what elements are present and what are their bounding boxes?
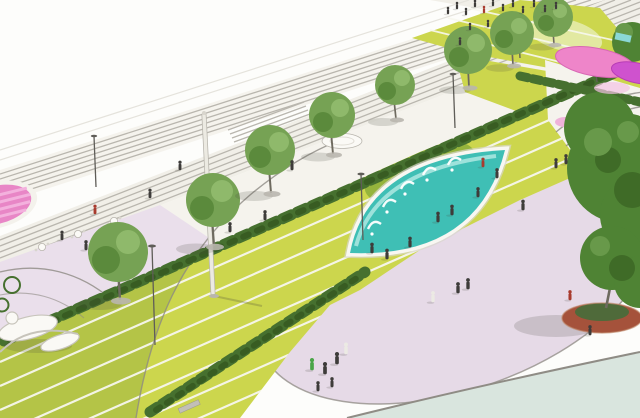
park-render-svg [0,0,640,418]
umbrella-shadow [594,82,630,94]
park-rendering-image [0,0,640,418]
